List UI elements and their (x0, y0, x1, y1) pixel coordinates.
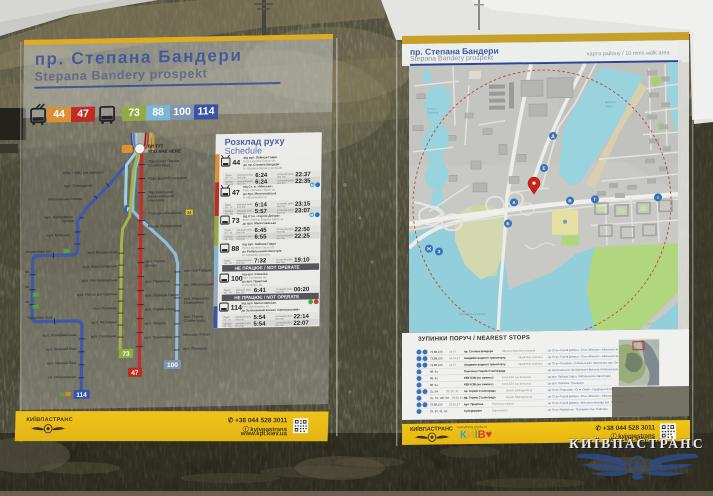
svg-text:вул. Йорданська: вул. Йорданська (88, 250, 119, 255)
svg-text:пр. Оболонський: пр. Оболонський (184, 282, 215, 287)
svg-text:73,88,100: 73,88,100 (430, 356, 443, 360)
svg-text:Пансіонат Героїв Сталінграду: Пансіонат Героїв Сталінграду (464, 369, 506, 374)
svg-text:6:14: 6:14 (255, 202, 268, 208)
svg-text:вул. Резервна: вул. Резервна (91, 320, 117, 325)
svg-text:останній рейсlast trip: останній рейсlast trip (276, 257, 293, 264)
svg-text:вул. Електриків: вул. Електриків (64, 184, 93, 189)
svg-text:вул. Приозерна: вул. Приозерна (144, 335, 173, 340)
svg-text:Московська площа: Московська площа (48, 197, 83, 202)
svg-text:22:07: 22:07 (293, 321, 309, 327)
svg-text:29, 30, 31: 29, 30, 31 (446, 389, 459, 393)
svg-text:КВЦ + КВЦ (на замовл.): КВЦ + КВЦ (на замовл.) (63, 170, 105, 175)
svg-text:88, 9а: 88, 9а (430, 370, 438, 374)
svg-text:31, 5Н: 31, 5Н (430, 389, 438, 393)
svg-text:73: 73 (122, 351, 130, 358)
svg-text:114: 114 (76, 392, 87, 399)
svg-text:31, 73, 100, 5Н: 31, 73, 100, 5Н (430, 396, 449, 400)
svg-text:to Myloslavska str.: to Myloslavska str. (243, 195, 268, 199)
svg-text:перший рейсfirst trip: перший рейсfirst trip (235, 321, 251, 328)
svg-text:114: 114 (231, 305, 242, 312)
svg-text:Супермаркет: Супермаркет (464, 409, 483, 413)
svg-text:перший рейсfirst trip: перший рейсfirst trip (236, 258, 252, 265)
svg-text:44,44,47: 44,44,47 (449, 356, 460, 360)
svg-text:KVU-KZV (on demand): KVU-KZV (on demand) (502, 375, 531, 379)
svg-text:пр. Героїв Сталінграда: пр. Героїв Сталінграда (464, 389, 496, 393)
svg-text:вул. Межигірська: вул. Межигірська (23, 270, 30, 275)
svg-text:І: І (657, 195, 658, 200)
svg-text:вул. Прирічна: вул. Прирічна (145, 279, 171, 283)
svg-text:пр. Степана Бандери: пр. Степана Бандери (464, 349, 493, 353)
svg-text:47: 47 (232, 190, 240, 197)
svg-text:to Rybalskyi pivostriv: to Rybalskyi pivostriv (242, 253, 271, 258)
svg-text:Е: Е (543, 166, 546, 171)
svg-text:73: 73 (232, 218, 240, 225)
svg-text:Лугова: Лугова (61, 219, 74, 223)
svg-text:KVU-KZV (on demand): KVU-KZV (on demand) (502, 381, 531, 385)
svg-text:44,47: 44,47 (449, 363, 456, 367)
svg-text:Тимошенка: Тимошенка (184, 300, 205, 304)
svg-text:Stepana Bandery prospekt: Stepana Bandery prospekt (502, 348, 535, 352)
svg-text:вул. Автозаводська: вул. Автозаводська (82, 278, 118, 283)
svg-text:7:32: 7:32 (254, 258, 267, 264)
svg-text:вул. Ярославська: вул. Ярославська (23, 300, 29, 305)
svg-text:Сталінграду: Сталінграду (183, 318, 205, 322)
svg-text:вул. Полярна: вул. Полярна (183, 346, 208, 350)
svg-text:23:15: 23:15 (295, 201, 311, 207)
svg-text:вул. Оленівська: вул. Оленівська (23, 285, 30, 290)
svg-text:88, 9а: 88, 9а (430, 383, 438, 387)
svg-text:Парк Дружби народів: Парк Дружби народів (148, 176, 187, 181)
svg-text:6:24: 6:24 (255, 173, 268, 179)
svg-text:Оболонська затока: Оболонська затока (459, 312, 486, 316)
svg-text:100: 100 (167, 362, 178, 369)
svg-text:пл. Оболонська: пл. Оболонська (48, 375, 77, 380)
svg-text:вул. Лайоша Гавро: вул. Лайоша Гавро (145, 293, 180, 298)
svg-text:Мінська площа: Мінська площа (183, 332, 211, 337)
svg-text:6:45: 6:45 (255, 228, 268, 234)
svg-text:вул. Полкова: вул. Полкова (93, 306, 117, 310)
svg-text:73,88,100: 73,88,100 (430, 403, 443, 407)
svg-text:Академія водного транспорту: Академія водного транспорту (464, 362, 506, 367)
svg-text:вихіднісб - нд: вихіднісб - нд (223, 321, 232, 328)
svg-text:44: 44 (232, 160, 240, 167)
svg-text:Контрактова пл.: Контрактова пл. (23, 249, 51, 254)
svg-text:Б: Б (506, 221, 509, 226)
svg-text:73,88,100: 73,88,100 (430, 363, 443, 367)
svg-text:Heroiv Stalingrada pr.: Heroiv Stalingrada pr. (506, 395, 533, 399)
svg-text:to Stepana Bandery prospekt: to Stepana Bandery prospekt (243, 166, 282, 171)
svg-text:Akademiia vodnoho: Akademiia vodnoho (518, 355, 543, 359)
svg-text:22:50: 22:50 (295, 227, 311, 233)
svg-text:Академія водного транспорту: Академія водного транспорту (464, 355, 506, 360)
svg-text:перший рейсfirst trip: перший рейсfirst trip (236, 288, 252, 295)
svg-text:вул. Вишгородська: вул. Вишгородська (83, 264, 118, 269)
svg-text:пр. Героїв Сталінграда: пр. Героїв Сталінграда (464, 395, 496, 399)
svg-text:вул. Сирецька: вул. Сирецька (91, 334, 118, 339)
svg-text:29,30,37: 29,30,37 (449, 402, 460, 406)
svg-text:Станція «Почайна»: Станція «Почайна» (148, 211, 182, 216)
svg-text:5:54: 5:54 (253, 315, 266, 321)
svg-text:до вул. Павлова, Троєщини: до вул. Павлова, Троєщини (548, 381, 584, 386)
svg-text:Масив Redpartment: Масив Redpartment (148, 224, 183, 229)
svg-text:озеро: озеро (605, 104, 613, 108)
svg-text:З: З (438, 249, 441, 254)
svg-text:88: 88 (231, 246, 239, 253)
svg-text:Ж: Ж (426, 246, 431, 251)
svg-text:вул. Спаська: вул. Спаська (46, 233, 70, 237)
svg-text:до Ст.м.«Фарватер», Троєщини,: до Ст.м.«Фарватер», Троєщини, вул. Павло… (548, 407, 608, 412)
svg-text:Supermarket: Supermarket (492, 408, 508, 412)
svg-text:YOU ARE HERE: YOU ARE HERE (148, 148, 181, 154)
svg-text:комплекс: комплекс (148, 198, 165, 202)
svg-text:вул. Петра Дегтяренка: вул. Петра Дегтяренка (77, 292, 118, 297)
svg-text:Дніпро: Дніпро (647, 321, 656, 325)
svg-text:47: 47 (131, 370, 139, 377)
svg-text:22:14: 22:14 (293, 314, 309, 320)
svg-text:88, 9а: 88, 9а (430, 376, 438, 380)
svg-text:останній рейсlast trip: останній рейсlast trip (276, 287, 293, 294)
svg-text:Опечень: Опечень (427, 110, 439, 114)
svg-text:22:37: 22:37 (295, 172, 311, 178)
svg-text:19:10: 19:10 (294, 257, 310, 263)
svg-text:29, 30, 31, 5А: 29, 30, 31, 5А (430, 409, 448, 413)
svg-text:73,88,100: 73,88,100 (430, 350, 443, 354)
svg-text:вул. Озерна: вул. Озерна (144, 321, 166, 325)
svg-text:6:41: 6:41 (254, 288, 267, 294)
svg-text:00:20: 00:20 (294, 287, 310, 293)
svg-text:Сталінграду: Сталінграду (148, 163, 170, 167)
svg-text:вул. Почайнинська: вул. Почайнинська (42, 333, 77, 338)
svg-text:вул. Героїв полку: вул. Героїв полку (145, 307, 176, 312)
svg-text:Дніпра: Дніпра (145, 263, 158, 267)
svg-text:M: M (310, 213, 313, 217)
svg-text:до вул. Лайоша Гавро, Рибальсь: до вул. Лайоша Гавро, Рибальського півос… (548, 374, 611, 379)
svg-text:44,47: 44,47 (449, 350, 456, 354)
svg-text:Heroiv Stalingrada pr.: Heroiv Stalingrada pr. (506, 388, 533, 392)
svg-text:Тарасова гора: Тарасова гора (27, 315, 54, 320)
svg-text:вул. Верхній Вал: вул. Верхній Вал (46, 347, 77, 352)
svg-text:до Ст.м.«Розрахав», Ст.м.«Звір: до Ст.м.«Розрахав», Ст.м.«Звірі», Кардіо… (548, 387, 614, 392)
svg-text:КВУ-КЗВ (на замовл.): КВУ-КЗВ (на замовл.) (464, 375, 493, 379)
svg-text:вул. Нижній Вал: вул. Нижній Вал (47, 361, 77, 366)
svg-text:Pryrichna vulytsia: Pryrichna vulytsia (492, 402, 514, 406)
svg-text:M: M (311, 183, 314, 187)
svg-text:Akademiia vodnoho: Akademiia vodnoho (518, 362, 543, 366)
svg-text:В: В (568, 198, 571, 203)
svg-text:КВУ-КЗВ (на замовл.): КВУ-КЗВ (на замовл.) (464, 382, 493, 386)
svg-text:5:54: 5:54 (253, 321, 266, 327)
svg-text:вул. Прирічна: вул. Прирічна (464, 402, 484, 406)
svg-text:вул. Зої Гайдай: вул. Зої Гайдай (184, 268, 212, 273)
svg-text:останній рейсlast trip: останній рейсlast trip (275, 320, 292, 327)
svg-text:ВИ ТУТ: ВИ ТУТ (148, 143, 164, 148)
